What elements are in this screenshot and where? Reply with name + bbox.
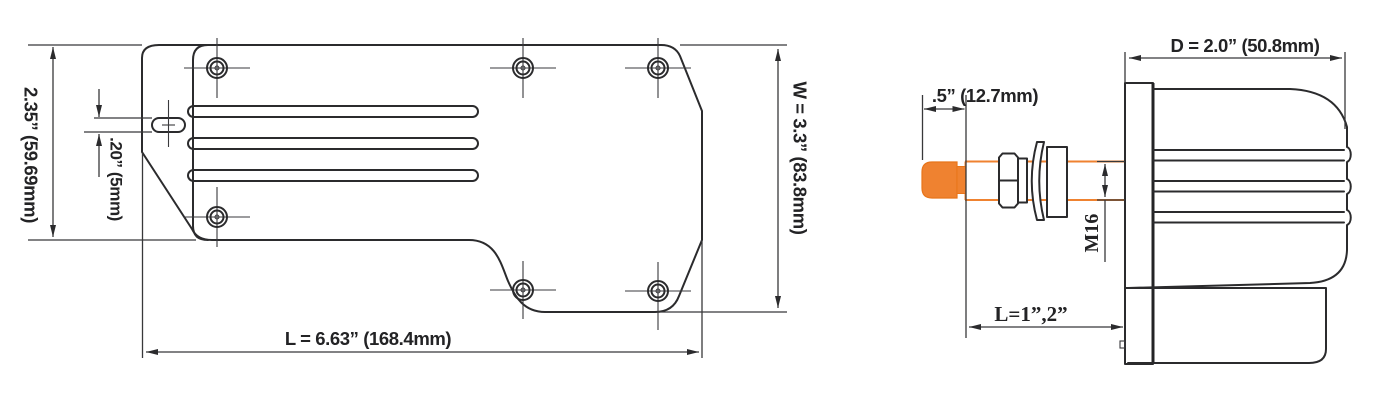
spacer — [1018, 159, 1027, 203]
motor-cover-outline — [142, 45, 702, 312]
dim-shaft-length: L=1”,2” — [969, 302, 1123, 327]
vent-rib — [188, 106, 478, 117]
hex-nut — [999, 154, 1018, 208]
body-rib — [1153, 150, 1344, 223]
screw-hole — [625, 262, 691, 330]
spring-washer — [1032, 142, 1044, 220]
top-view: 2.35” (59.69mm) .20” (5mm) W = 3.3” (83.… — [21, 38, 811, 358]
vent-rib — [188, 170, 478, 181]
dim-tip-label: .5” (12.7mm) — [932, 85, 1038, 106]
screw-hole — [490, 261, 556, 319]
flat-washer — [1047, 147, 1067, 217]
gearbox-housing — [1125, 288, 1326, 363]
dim-depth-label: D = 2.0” (50.8mm) — [1171, 35, 1320, 56]
shaft-step — [957, 167, 966, 194]
motor-body — [1128, 89, 1351, 288]
vent-rib — [188, 138, 478, 149]
dim-slot-label: .20” (5mm) — [107, 137, 126, 221]
screw-hole — [625, 38, 691, 98]
dim-height-label: 2.35” (59.69mm) — [21, 87, 42, 223]
dim-depth: D = 2.0” (50.8mm) — [1125, 35, 1345, 129]
dim-thread: M16 — [1081, 162, 1125, 263]
dimension-drawing: 2.35” (59.69mm) .20” (5mm) W = 3.3” (83.… — [0, 0, 1387, 409]
drawing-canvas: 2.35” (59.69mm) .20” (5mm) W = 3.3” (83.… — [0, 0, 1387, 409]
dim-shaft-length-label: L=1”,2” — [994, 302, 1067, 326]
dim-length: L = 6.63” (168.4mm) — [143, 153, 703, 358]
dim-width-label: W = 3.3” (83.8mm) — [790, 81, 811, 234]
mounting-slot — [152, 100, 185, 147]
shaft-tip — [922, 162, 957, 198]
thread-label: M16 — [1081, 214, 1103, 253]
motor-flange — [1120, 83, 1153, 364]
screw-hole — [490, 38, 556, 98]
dim-length-label: L = 6.63” (168.4mm) — [285, 328, 452, 349]
dim-tip: .5” (12.7mm) — [923, 85, 1039, 338]
dim-width: W = 3.3” (83.8mm) — [658, 45, 811, 312]
cover-left-edge — [193, 45, 208, 240]
side-view: .5” (12.7mm) D = 2.0” (50.8mm) M16 L=1”,… — [922, 35, 1351, 364]
